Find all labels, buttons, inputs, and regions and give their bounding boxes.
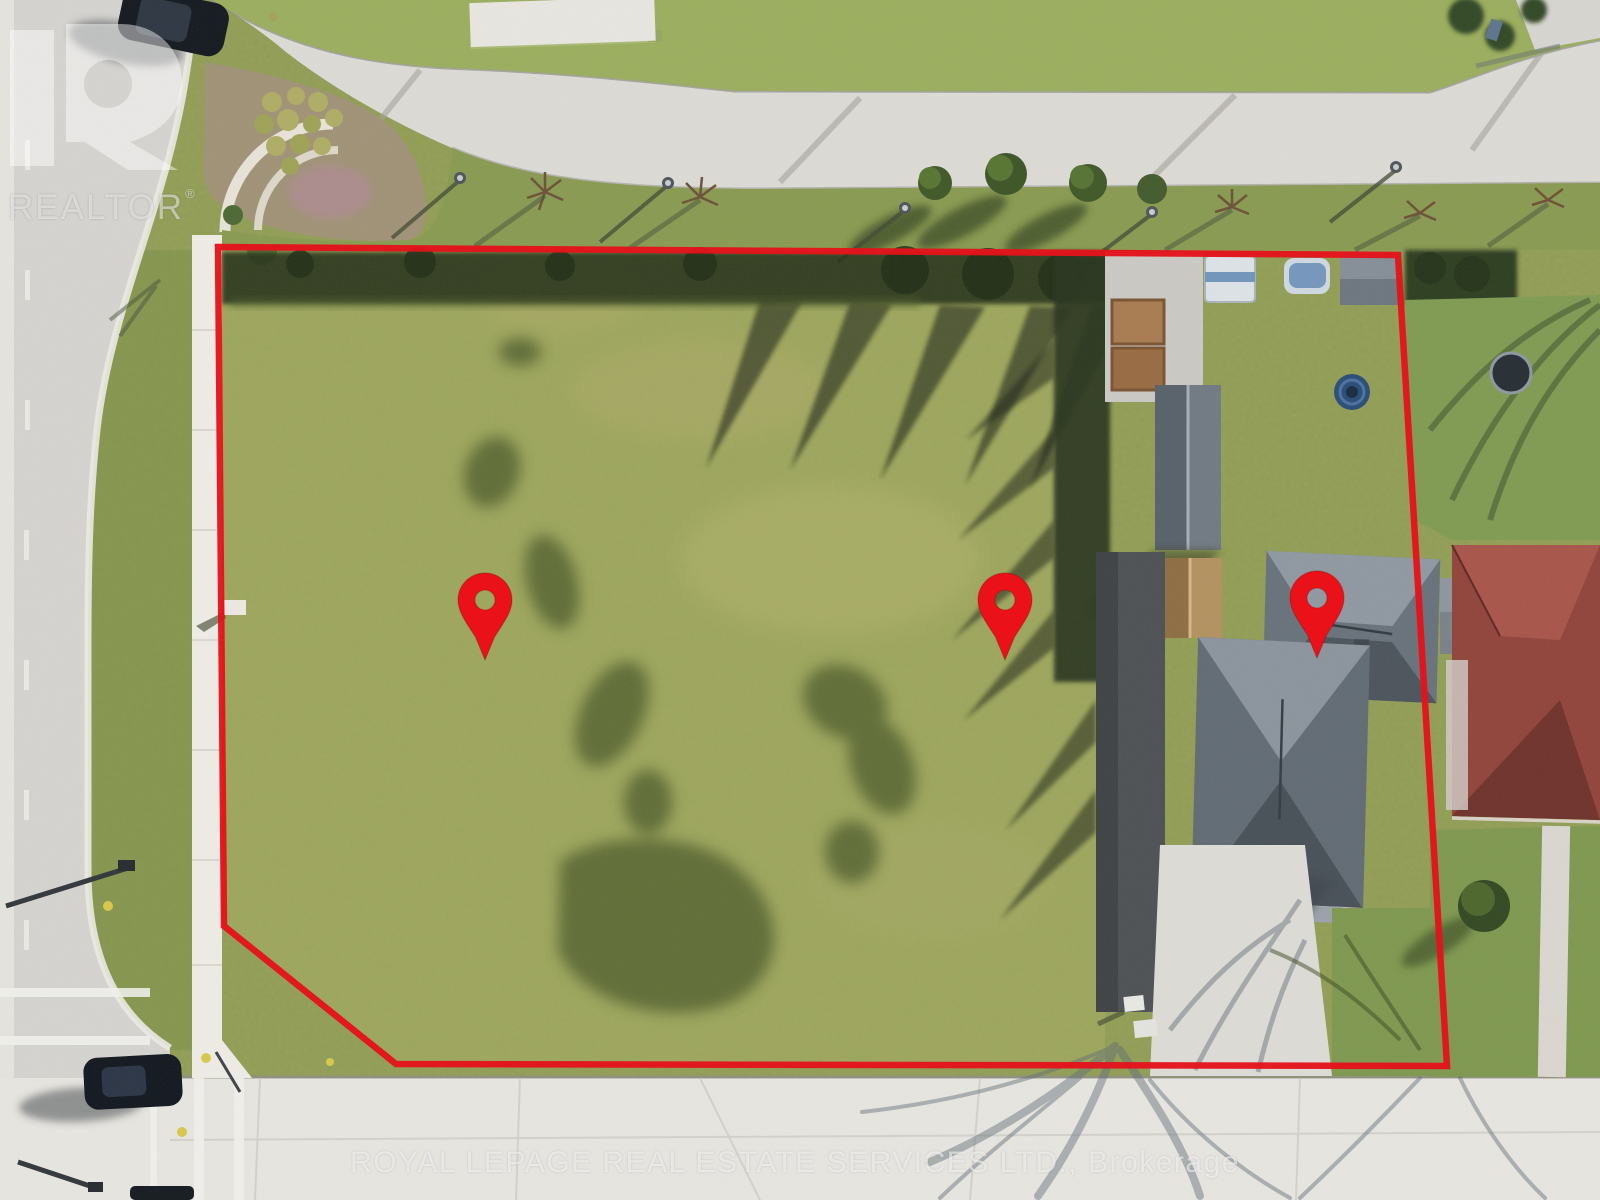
- registered-mark: ®: [185, 186, 197, 201]
- brokerage-watermark: ROYAL LEPAGE REAL ESTATE SERVICES LTD., …: [350, 1146, 1240, 1180]
- aerial-property-photo: R REALTOR® ROYAL LEPAGE REAL ESTATE SERV…: [0, 0, 1600, 1200]
- realtor-logo-watermark: R REALTOR®: [8, 22, 208, 228]
- photo-grain: [0, 0, 1600, 1200]
- aerial-scene: [0, 0, 1600, 1200]
- realtor-label: REALTOR®: [8, 188, 208, 228]
- realtor-r-icon: R: [8, 22, 188, 174]
